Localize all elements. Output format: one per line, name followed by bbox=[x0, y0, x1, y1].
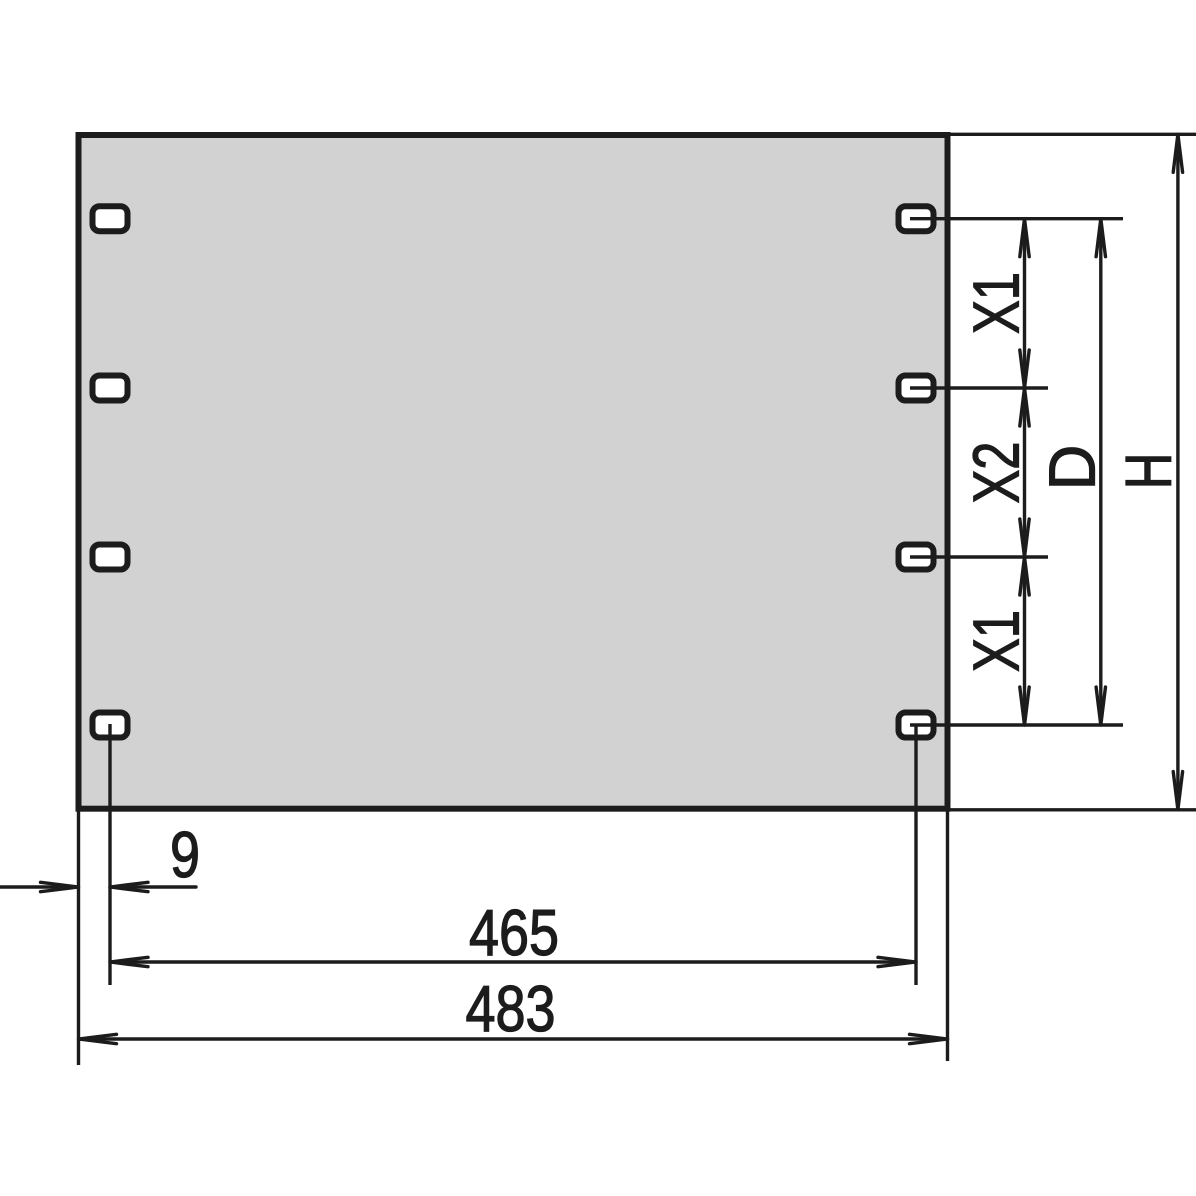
svg-text:D: D bbox=[1036, 445, 1109, 491]
svg-text:483: 483 bbox=[466, 972, 556, 1045]
svg-text:X1: X1 bbox=[961, 272, 1033, 334]
svg-text:9: 9 bbox=[170, 818, 200, 891]
svg-text:X2: X2 bbox=[961, 441, 1033, 503]
svg-text:H: H bbox=[1113, 453, 1185, 490]
svg-text:465: 465 bbox=[469, 896, 559, 969]
svg-text:X1: X1 bbox=[961, 610, 1033, 672]
